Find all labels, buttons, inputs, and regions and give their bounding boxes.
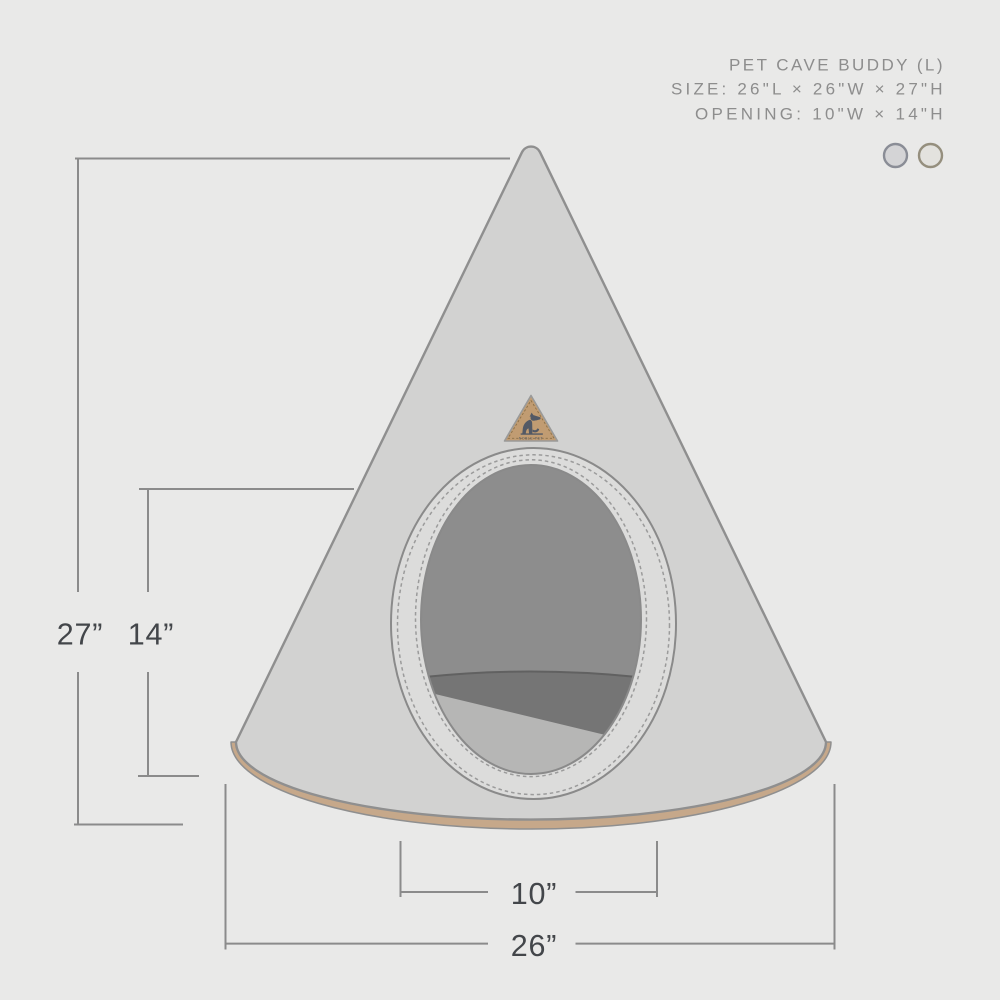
svg-text:10”: 10” (511, 877, 557, 911)
svg-text:14”: 14” (128, 618, 174, 652)
svg-text:SIZE: 26"L × 26"W × 27"H: SIZE: 26"L × 26"W × 27"H (671, 79, 945, 98)
svg-text:PET CAVE BUDDY (L): PET CAVE BUDDY (L) (729, 56, 945, 75)
svg-text:NOBLE PET: NOBLE PET (519, 437, 543, 441)
svg-text:26”: 26” (511, 929, 557, 963)
svg-text:27”: 27” (57, 618, 103, 652)
svg-text:OPENING: 10"W × 14"H: OPENING: 10"W × 14"H (695, 104, 945, 123)
